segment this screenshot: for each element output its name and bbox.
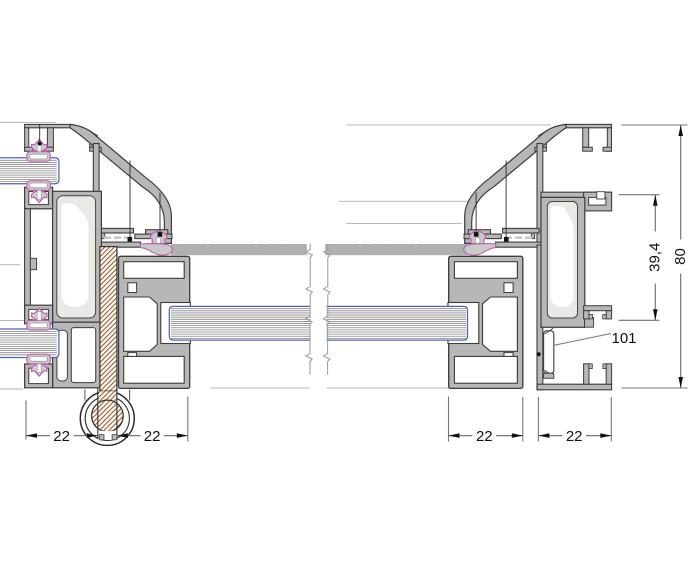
svg-text:80: 80 <box>672 248 689 265</box>
svg-text:39,4: 39,4 <box>647 243 664 272</box>
svg-text:22: 22 <box>53 428 70 445</box>
svg-text:101: 101 <box>612 330 637 347</box>
svg-text:22: 22 <box>144 428 161 445</box>
svg-text:22: 22 <box>476 428 493 445</box>
svg-text:22: 22 <box>566 428 583 445</box>
